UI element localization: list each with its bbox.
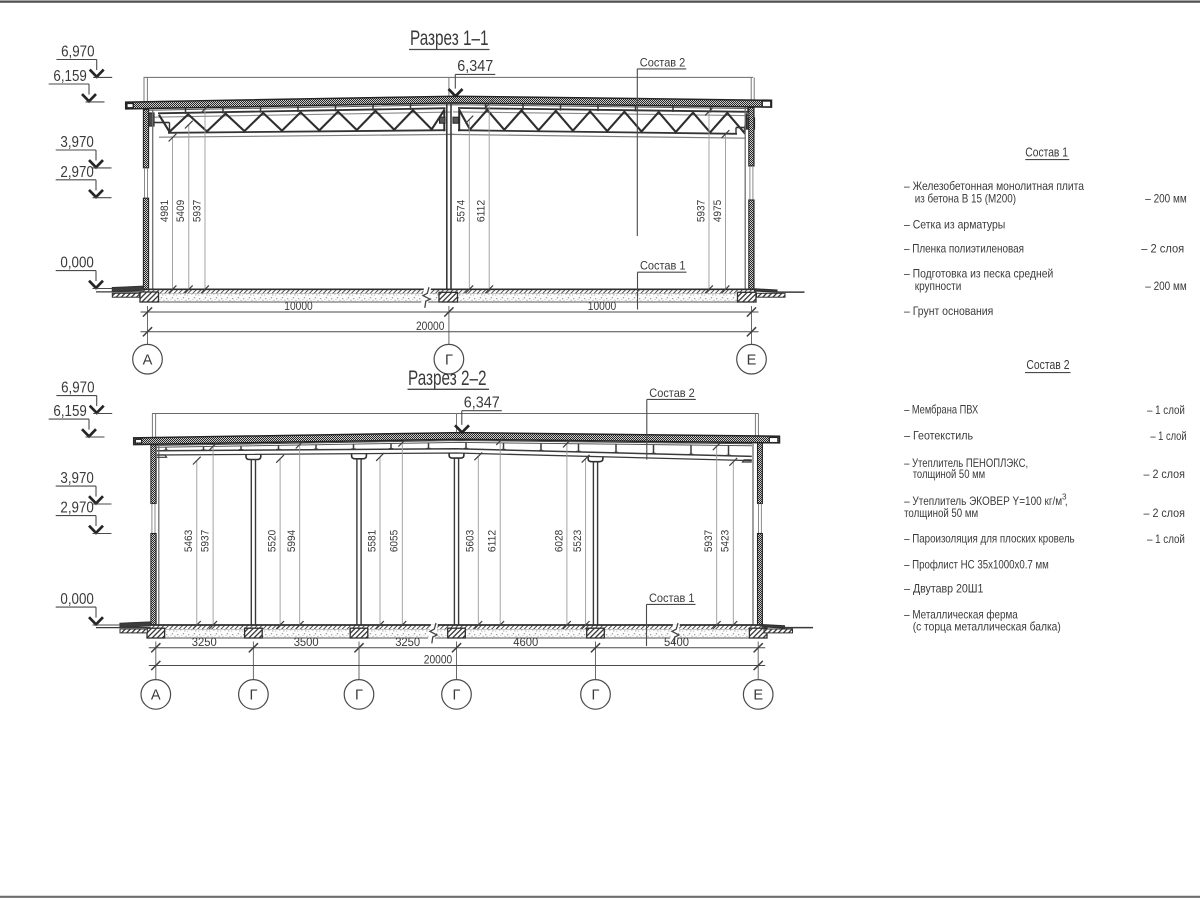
svg-text:3500: 3500 [294, 635, 319, 649]
svg-text:5574: 5574 [456, 200, 468, 222]
svg-text:А: А [143, 352, 153, 368]
svg-text:5423: 5423 [720, 530, 732, 552]
svg-text:10000: 10000 [588, 299, 616, 313]
svg-text:5463: 5463 [183, 530, 195, 552]
svg-text:– Профлист НС 35х1000х0.7 мм: – Профлист НС 35х1000х0.7 мм [904, 558, 1049, 572]
svg-text:толщиной 50 мм: толщиной 50 мм [904, 506, 978, 520]
svg-text:20000: 20000 [416, 319, 444, 333]
svg-text:из бетона В 15 (М200): из бетона В 15 (М200) [915, 191, 1016, 205]
svg-text:(с торца металлическая балка): (с торца металлическая балка) [913, 620, 1061, 634]
svg-text:6,970: 6,970 [61, 44, 95, 61]
svg-text:– Двутавр 20Ш1: – Двутавр 20Ш1 [904, 582, 984, 596]
svg-text:– Геотекстиль: – Геотекстиль [904, 429, 973, 443]
svg-text:3: 3 [1062, 493, 1067, 502]
svg-text:3250: 3250 [395, 635, 420, 649]
svg-text:Е: Е [747, 352, 757, 368]
svg-text:20000: 20000 [424, 653, 452, 667]
svg-text:Состав 1: Состав 1 [1025, 146, 1068, 160]
svg-text:5581: 5581 [366, 530, 378, 552]
svg-text:3,970: 3,970 [60, 470, 94, 487]
svg-text:Состав 2: Состав 2 [1026, 358, 1069, 372]
svg-text:– 200 мм: – 200 мм [1145, 192, 1186, 206]
svg-text:6028: 6028 [553, 530, 565, 552]
svg-text:3250: 3250 [192, 635, 217, 649]
svg-text:5523: 5523 [572, 530, 584, 552]
svg-text:А: А [151, 688, 161, 704]
svg-text:– Сетка из арматуры: – Сетка из арматуры [904, 217, 1005, 231]
svg-text:5937: 5937 [695, 200, 707, 222]
svg-text:Состав 1: Состав 1 [640, 259, 686, 273]
svg-text:Г: Г [249, 688, 257, 704]
svg-text:5603: 5603 [465, 530, 477, 552]
svg-text:3,970: 3,970 [60, 134, 94, 151]
svg-text:– 1 слой: – 1 слой [1147, 532, 1185, 546]
svg-text:Е: Е [753, 688, 763, 704]
svg-text:0,000: 0,000 [60, 591, 94, 608]
svg-text:крупности: крупности [915, 279, 962, 293]
svg-text:– 200 мм: – 200 мм [1145, 279, 1186, 293]
svg-text:2,970: 2,970 [60, 500, 94, 517]
svg-text:5520: 5520 [267, 530, 279, 552]
svg-text:– 2 слоя: – 2 слоя [1144, 506, 1185, 520]
svg-text:– 2 слоя: – 2 слоя [1141, 242, 1184, 256]
svg-text:– Пароизоляция для плоских кро: – Пароизоляция для плоских кровель [904, 532, 1075, 546]
svg-text:5937: 5937 [191, 200, 203, 222]
svg-text:4975: 4975 [712, 200, 724, 222]
svg-text:6055: 6055 [389, 530, 401, 552]
svg-text:6,970: 6,970 [61, 380, 95, 397]
svg-text:6,159: 6,159 [53, 403, 86, 420]
svg-text:Состав 2: Состав 2 [640, 55, 686, 69]
svg-text:– 2 слоя: – 2 слоя [1144, 467, 1185, 481]
svg-text:– 1 слой: – 1 слой [1150, 429, 1186, 443]
svg-text:Состав 2: Состав 2 [649, 386, 695, 400]
svg-text:5409: 5409 [175, 200, 187, 222]
svg-text:Г: Г [592, 688, 600, 704]
svg-text:Состав 1: Состав 1 [649, 591, 695, 605]
svg-text:5937: 5937 [200, 530, 212, 552]
svg-text:6112: 6112 [476, 200, 488, 222]
svg-text:Г: Г [355, 688, 363, 704]
svg-text:4600: 4600 [513, 635, 538, 649]
svg-text:– 1 слой: – 1 слой [1147, 403, 1185, 417]
svg-text:Разрез 1–1: Разрез 1–1 [410, 26, 489, 50]
svg-text:4981: 4981 [159, 200, 171, 222]
svg-text:5994: 5994 [286, 530, 298, 552]
svg-text:– Мембрана ПВХ: – Мембрана ПВХ [904, 403, 978, 417]
svg-text:6,347: 6,347 [457, 58, 493, 75]
svg-text:10000: 10000 [284, 299, 312, 313]
svg-text:– Пленка полиэтиленовая: – Пленка полиэтиленовая [904, 241, 1024, 255]
svg-text:Г: Г [453, 688, 461, 704]
svg-text:6,347: 6,347 [464, 394, 500, 411]
svg-text:6112: 6112 [487, 530, 499, 552]
svg-text:5400: 5400 [664, 635, 689, 649]
svg-text:0,000: 0,000 [60, 255, 94, 272]
svg-text:6,159: 6,159 [53, 68, 86, 85]
svg-text:– Грунт основания: – Грунт основания [904, 304, 993, 318]
svg-text:толщиной 50 мм: толщиной 50 мм [913, 467, 985, 481]
svg-text:2,970: 2,970 [60, 164, 94, 181]
svg-text:5937: 5937 [703, 530, 715, 552]
svg-text:Разрез 2–2: Разрез 2–2 [408, 366, 487, 390]
